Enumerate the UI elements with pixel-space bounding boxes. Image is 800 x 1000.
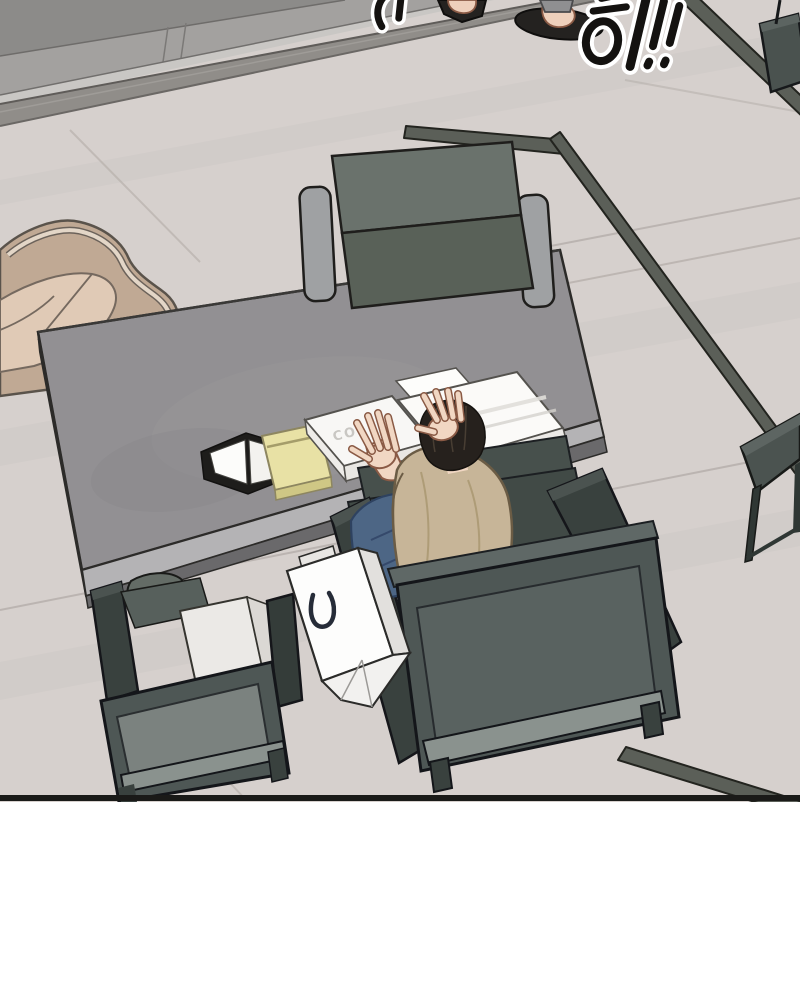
chair-foot [430,758,452,792]
chair-foot [268,748,288,782]
comic-panel: 히!! 하 [0,0,800,802]
panel-border-bottom [0,795,800,801]
chair-foot [641,702,663,738]
page-gutter [0,802,800,1000]
pant-cuff [540,0,573,12]
bottom-left-chair [91,573,302,802]
comic-page: 히!! 하 [0,0,800,1000]
scene-art: CO [0,0,800,802]
guest-chair-armrest-left [299,186,336,301]
